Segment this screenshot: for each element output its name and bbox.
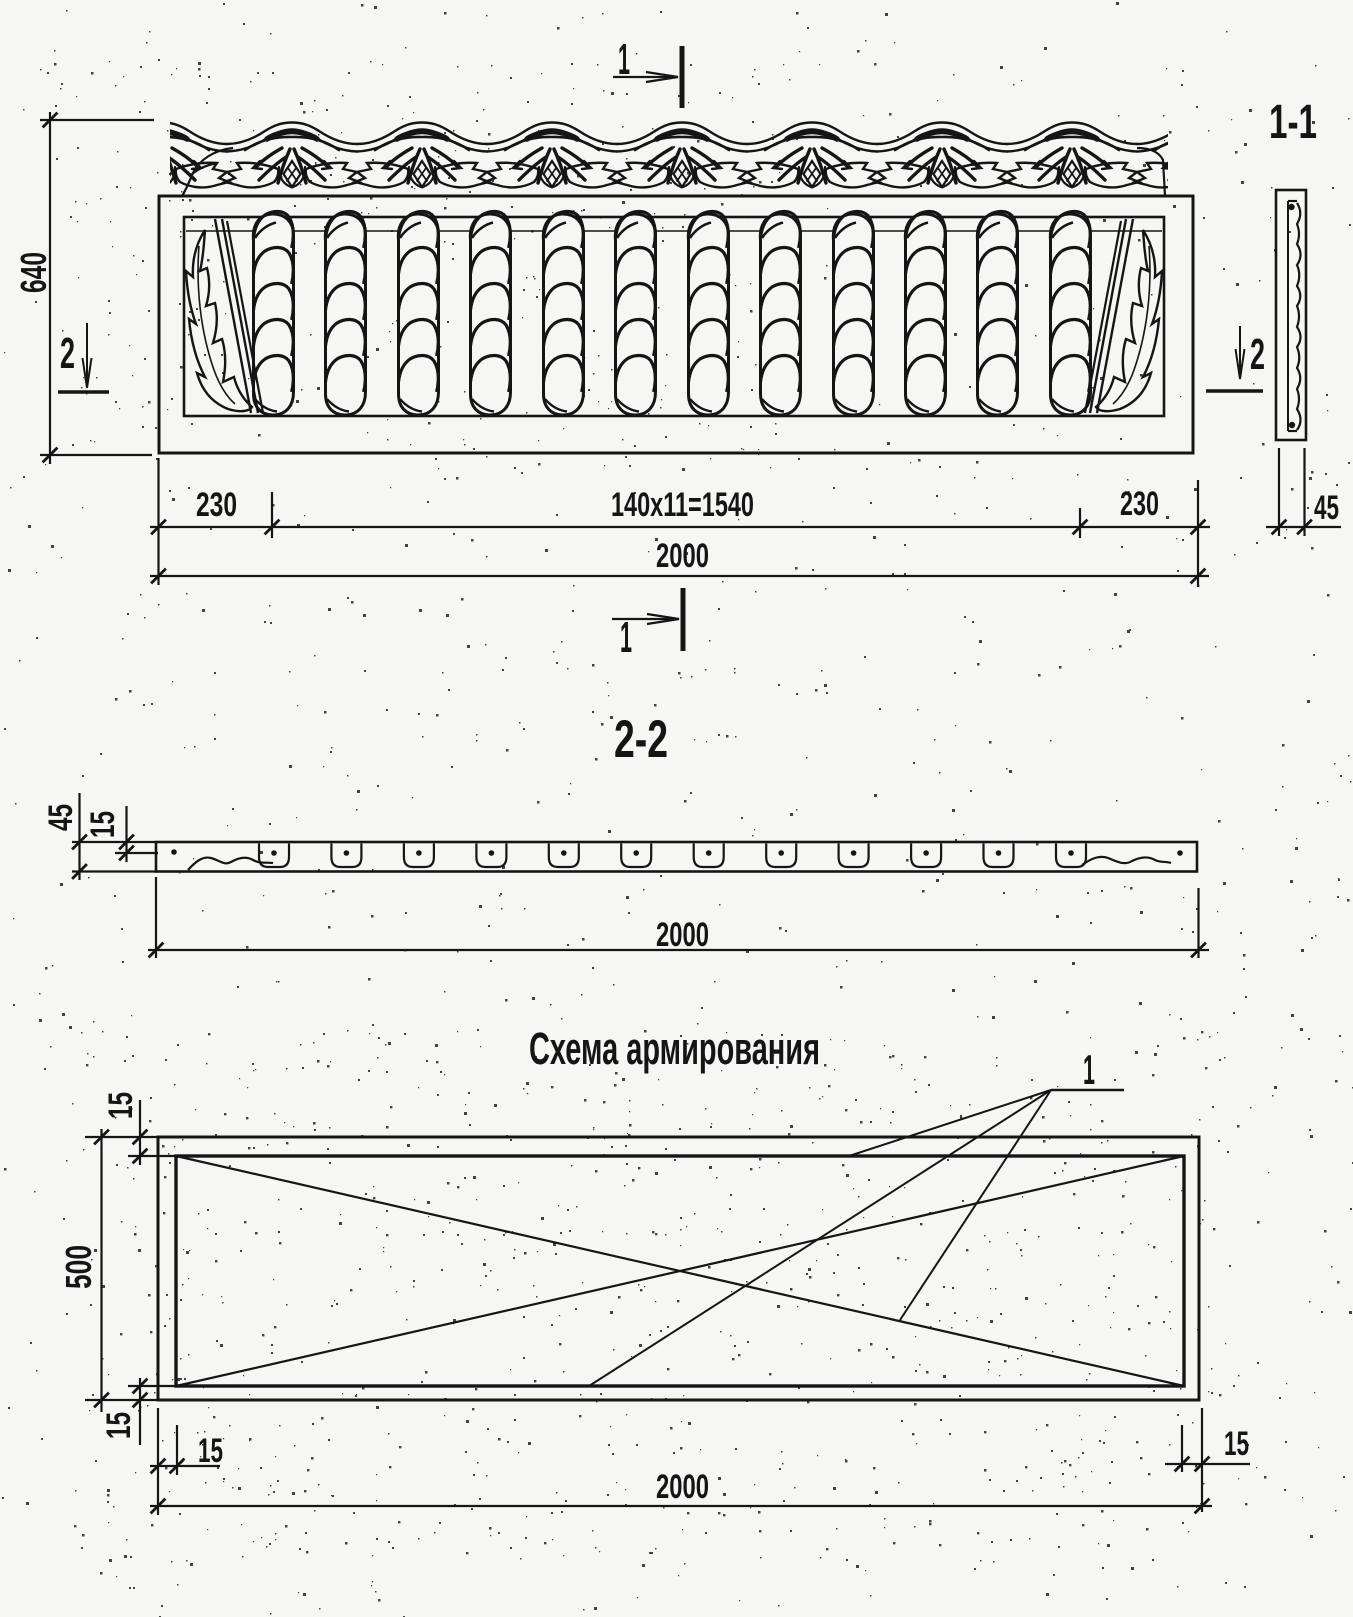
- svg-text:2000: 2000: [656, 916, 709, 954]
- svg-text:640: 640: [13, 252, 54, 293]
- svg-text:1-1: 1-1: [1269, 96, 1317, 149]
- svg-text:2-2: 2-2: [614, 710, 668, 769]
- svg-text:15: 15: [102, 1092, 140, 1119]
- svg-text:15: 15: [100, 1412, 138, 1439]
- svg-text:15: 15: [84, 811, 122, 838]
- svg-text:45: 45: [1314, 489, 1339, 527]
- svg-text:230: 230: [196, 486, 237, 524]
- svg-text:2: 2: [60, 329, 75, 378]
- svg-text:2000: 2000: [656, 537, 709, 575]
- svg-text:45: 45: [42, 804, 80, 831]
- svg-text:1: 1: [1083, 1046, 1095, 1093]
- svg-text:15: 15: [1224, 1425, 1249, 1463]
- svg-text:15: 15: [198, 1432, 223, 1470]
- svg-text:230: 230: [1120, 485, 1159, 523]
- svg-text:2000: 2000: [656, 1468, 709, 1506]
- svg-text:140x11=1540: 140x11=1540: [611, 486, 754, 524]
- svg-text:2: 2: [1250, 330, 1265, 379]
- svg-text:1: 1: [618, 35, 630, 84]
- svg-text:1: 1: [620, 613, 632, 662]
- svg-text:500: 500: [58, 1245, 99, 1289]
- svg-text:Схема армирования: Схема армирования: [529, 1023, 820, 1074]
